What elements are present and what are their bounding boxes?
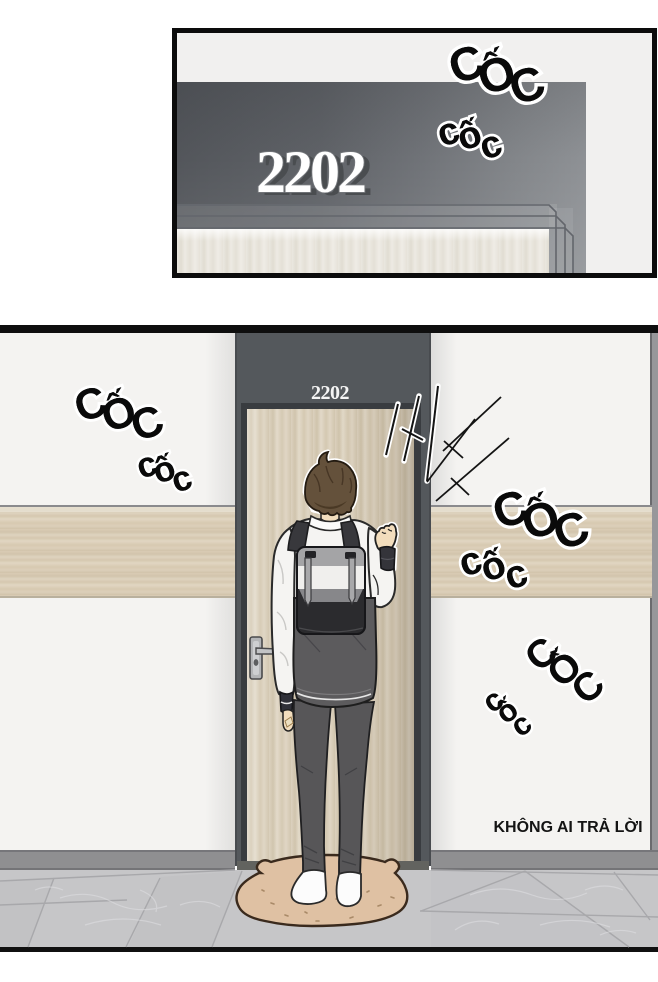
svg-text:CỐC: CỐC (441, 33, 551, 115)
svg-text:cốc: cốc (432, 109, 507, 168)
svg-text:cốc: cốc (476, 681, 539, 743)
svg-text:CỐC: CỐC (485, 478, 595, 560)
svg-text:KHÔNG AI TRẢ LỜI: KHÔNG AI TRẢ LỜI (493, 817, 642, 836)
svg-text:CỐC: CỐC (517, 629, 613, 713)
svg-text:2202: 2202 (256, 139, 365, 205)
svg-text:cốc: cốc (131, 444, 196, 501)
svg-text:2202: 2202 (311, 382, 350, 404)
svg-text:cốc: cốc (453, 538, 532, 599)
svg-text:CỐC: CỐC (68, 377, 169, 451)
